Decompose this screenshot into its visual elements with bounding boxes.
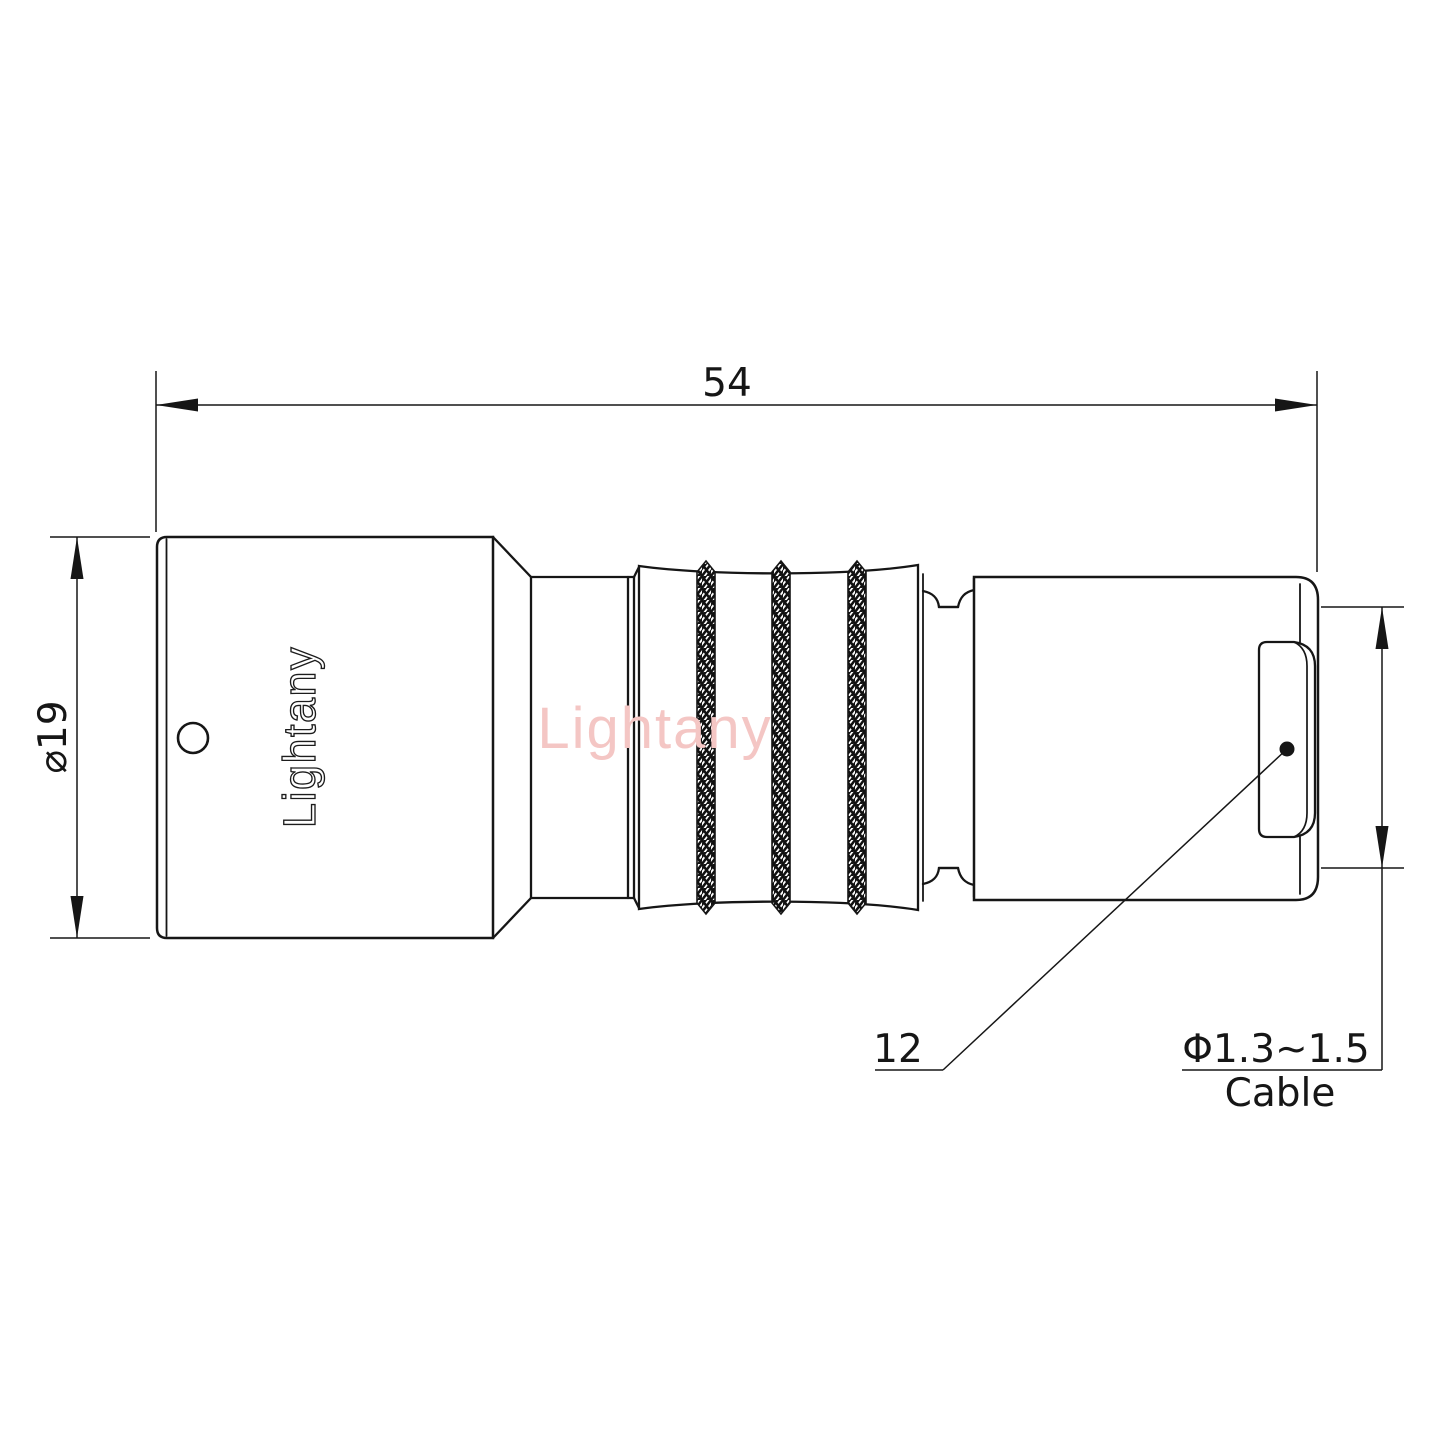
watermark-text: Lightany [537, 696, 772, 761]
knurl-band [772, 561, 790, 914]
cable-range-label: Φ1.3~1.5 [1182, 1027, 1369, 1072]
release-hole [178, 723, 208, 753]
dim-front-diameter-label: ⌀19 [31, 700, 76, 773]
drawing-svg: Lightany Lightany 54 ⌀19 Φ1.3~1.5 Cable … [0, 0, 1440, 1440]
arrowhead-down [1376, 826, 1389, 868]
knurl-band [848, 561, 866, 914]
arrowhead-up [1376, 607, 1389, 649]
brand-engraving: Lightany [274, 646, 325, 828]
cable-word-label: Cable [1225, 1071, 1336, 1116]
arrowhead-up [71, 537, 84, 579]
arrowhead-down [71, 896, 84, 938]
cable-bushing [1259, 642, 1315, 837]
dim-overall-length-label: 54 [702, 361, 752, 406]
neck-groove [923, 578, 974, 897]
dim-12-label: 12 [873, 1027, 923, 1072]
front-body [157, 537, 493, 938]
taper-transition [493, 537, 531, 938]
arrowhead-left [156, 399, 198, 412]
arrowhead-right [1275, 399, 1317, 412]
technical-drawing: Lightany Lightany 54 ⌀19 Φ1.3~1.5 Cable … [0, 0, 1440, 1440]
